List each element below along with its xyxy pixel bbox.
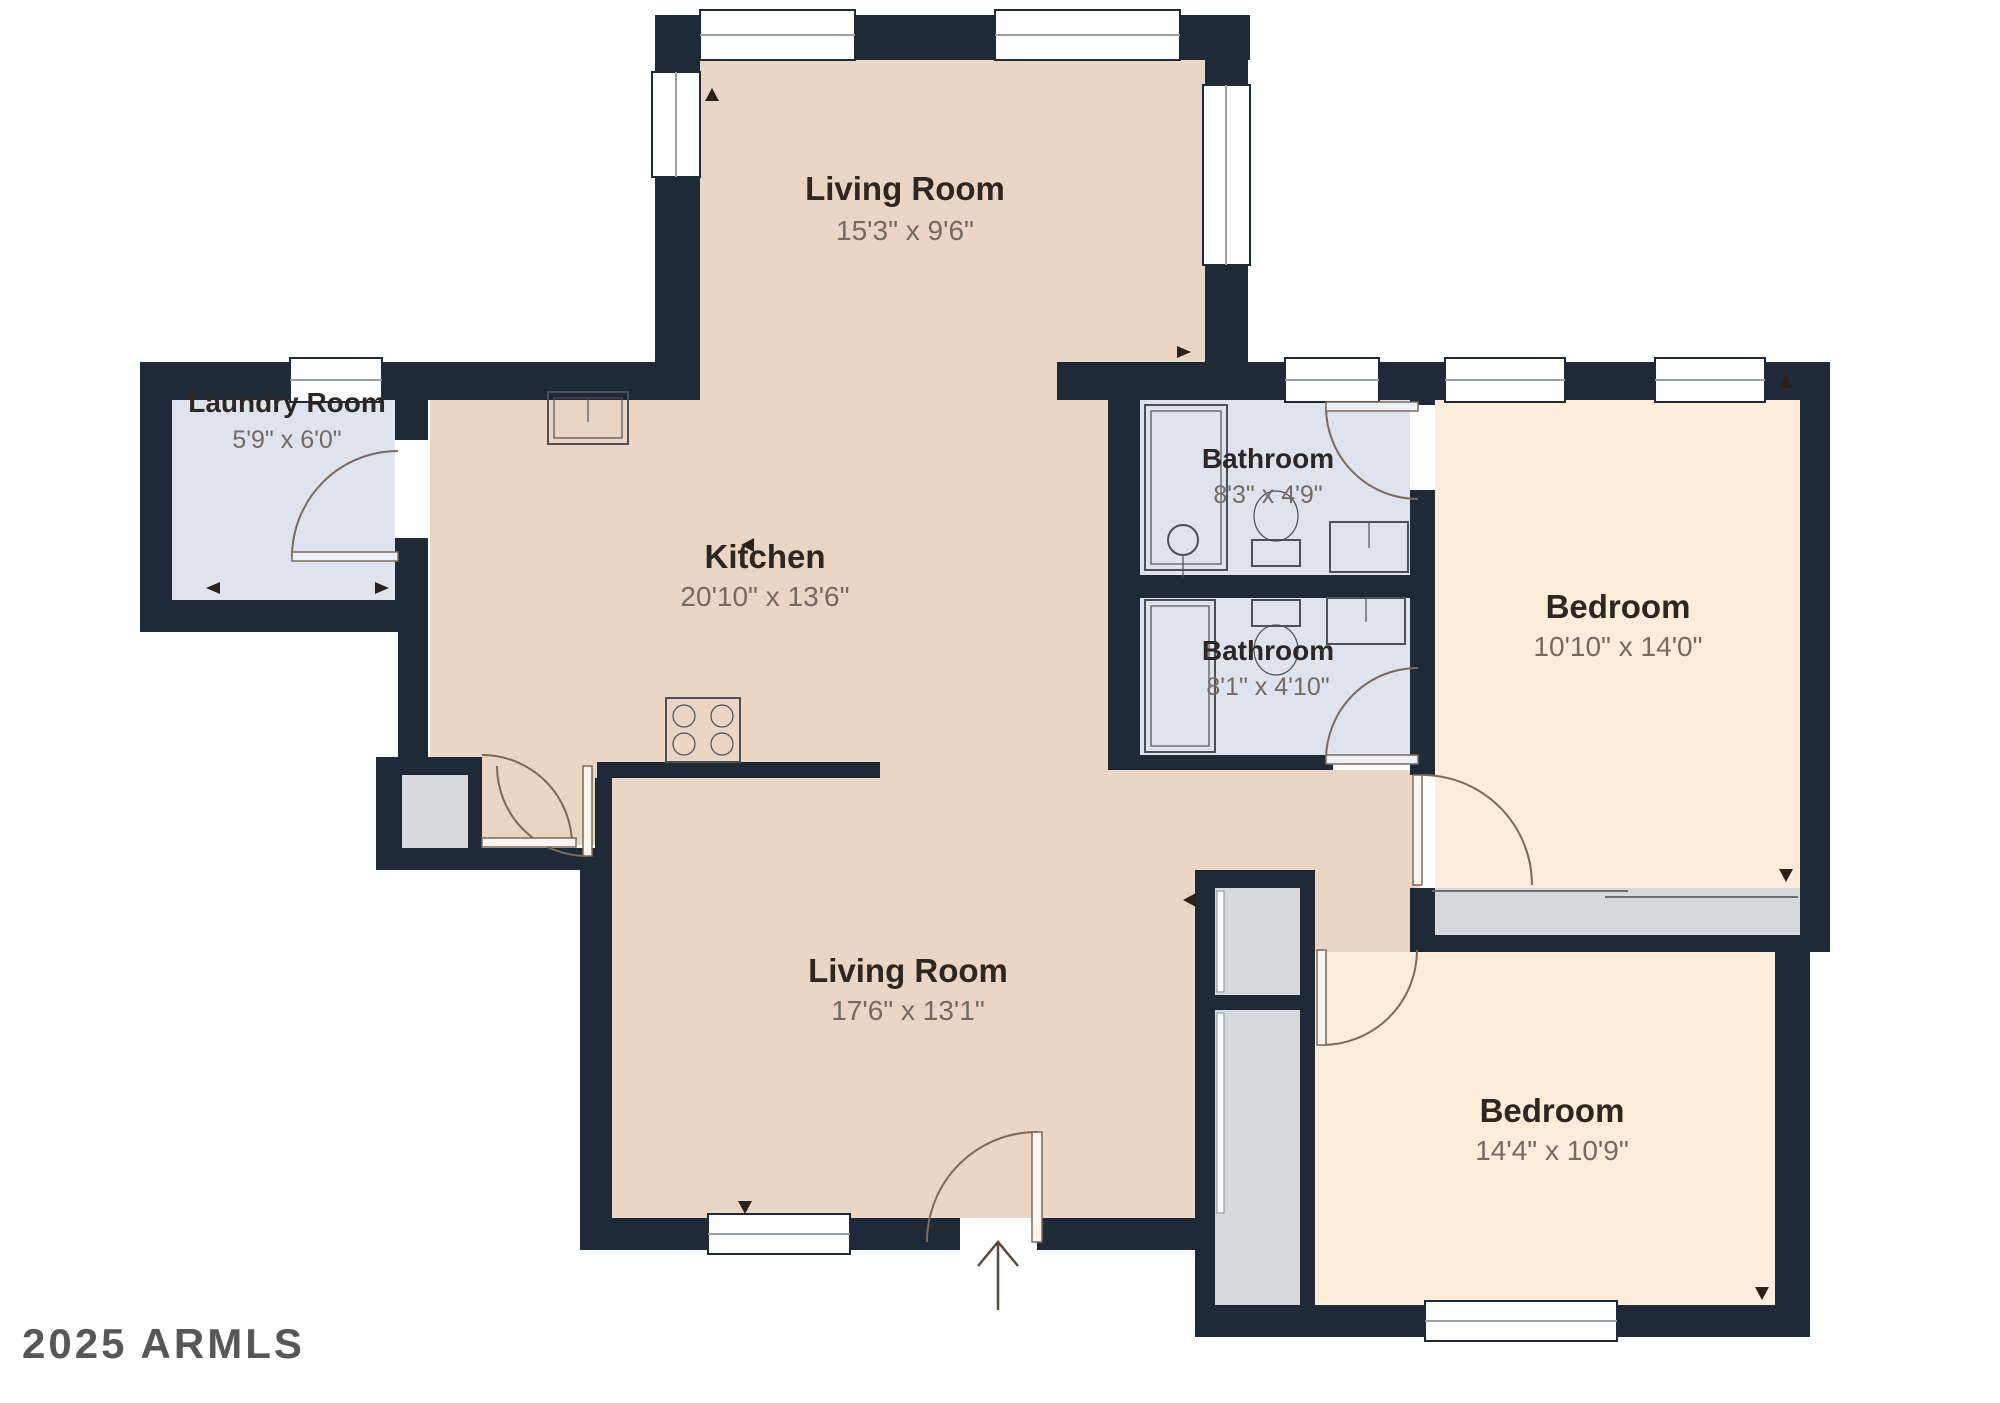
window	[1425, 1301, 1617, 1341]
room-dims-living-room-top: 15'3" x 9'6"	[836, 215, 974, 246]
entry-arrow	[978, 1242, 1018, 1310]
room-dims-bathroom-1: 8'3" x 4'9"	[1213, 481, 1322, 509]
room-dims-kitchen: 20'10" x 13'6"	[680, 581, 849, 612]
window	[1285, 358, 1379, 402]
room-dims-bedroom-2: 14'4" x 10'9"	[1475, 1135, 1629, 1166]
room-label-bedroom-1: Bedroom	[1546, 588, 1691, 625]
room-label-laundry-room: Laundry Room	[188, 387, 386, 418]
room-label-bathroom-2: Bathroom	[1202, 635, 1334, 666]
room-dims-bedroom-1: 10'10" x 14'0"	[1533, 631, 1702, 662]
window	[652, 72, 700, 177]
room-label-bathroom-1: Bathroom	[1202, 443, 1334, 474]
window	[700, 10, 855, 60]
room-label-living-room-top: Living Room	[805, 170, 1005, 207]
window	[1445, 358, 1565, 402]
room-label-bedroom-2: Bedroom	[1480, 1092, 1625, 1129]
room-label-kitchen: Kitchen	[704, 538, 825, 575]
room-dims-bathroom-2: 8'1" x 4'10"	[1206, 673, 1329, 701]
window	[995, 10, 1180, 60]
watermark-text: 2025 ARMLS	[22, 1320, 305, 1367]
window	[1655, 358, 1765, 402]
room-label-living-room-main: Living Room	[808, 952, 1008, 989]
floor-plan-canvas: Living Room 15'3" x 9'6" Laundry Room 5'…	[0, 0, 2000, 1403]
window	[708, 1214, 850, 1254]
window	[1203, 85, 1250, 265]
floor-plan-page: Living Room 15'3" x 9'6" Laundry Room 5'…	[0, 0, 2000, 1403]
room-dims-laundry-room: 5'9" x 6'0"	[232, 426, 341, 454]
room-dims-living-room-main: 17'6" x 13'1"	[831, 995, 985, 1026]
